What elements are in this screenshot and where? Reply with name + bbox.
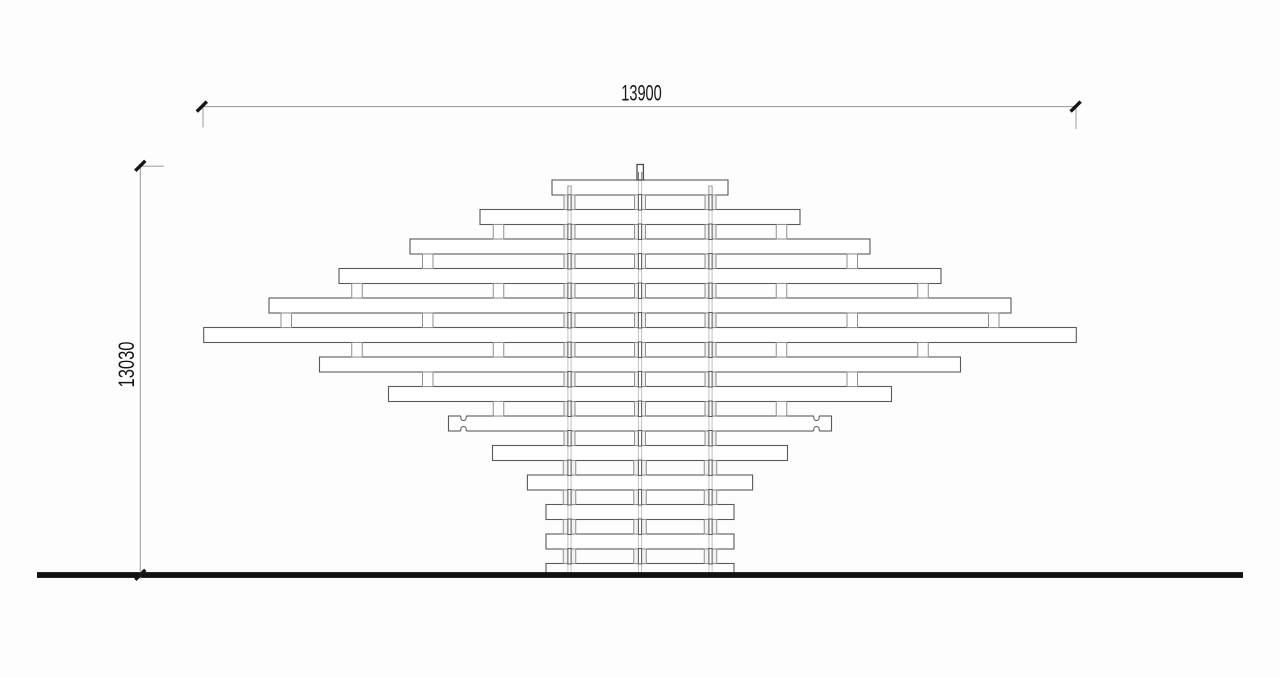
svg-text:13900: 13900 xyxy=(621,81,662,106)
svg-text:13030: 13030 xyxy=(114,342,139,388)
